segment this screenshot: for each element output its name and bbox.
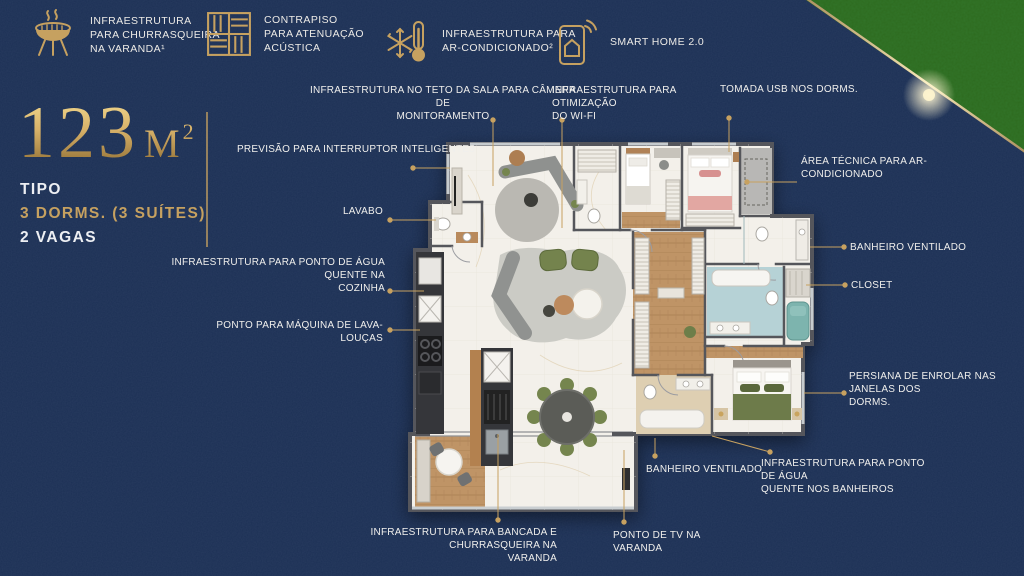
feature-smart-home: SMART HOME 2.0 (552, 17, 704, 67)
desk (654, 148, 680, 158)
toilet (644, 385, 656, 399)
toilet (766, 291, 778, 305)
callout-bancada-churrasqueira: INFRAESTRUTURA PARA BANCADA E CHURRASQUE… (337, 526, 557, 565)
bathtub (640, 410, 704, 428)
callout-line: BANHEIRO VENTILADO (646, 463, 762, 476)
feature-label-line: CONTRAPISO (264, 13, 364, 27)
area-title: 123M2 (18, 98, 197, 168)
bedroom-1 (686, 148, 739, 226)
area-unit: M (144, 121, 183, 166)
spec-vagas: 2 VAGAS (20, 226, 206, 250)
callout-line: DORMS. (849, 396, 1024, 409)
callout-line: DO WI-FI (552, 110, 712, 123)
callout-line: PONTO DE TV NA (613, 529, 701, 542)
fridge (419, 258, 441, 284)
callout-agua-cozinha: INFRAESTRUTURA PARA PONTO DE ÁGUA QUENTE… (163, 256, 385, 295)
callout-closet: CLOSET (851, 279, 893, 292)
callout-banheiro-ventilado-right: BANHEIRO VENTILADO (850, 241, 966, 254)
round-table-wood (554, 295, 574, 315)
closet (786, 269, 810, 340)
callout-wifi: INFRAESTRUTURA PARA OTIMIZAÇÃO DO WI-FI (552, 84, 712, 123)
lounge-bench (417, 440, 430, 502)
callout-persiana: PERSIANA DE ENROLAR NAS JANELAS DOS DORM… (849, 370, 1024, 409)
callout-line: INFRAESTRUTURA PARA PONTO DE ÁGUA QUENTE… (163, 256, 385, 282)
feature-ar-condicionado: INFRAESTRUTURA PARA AR-CONDICIONADO² (380, 15, 576, 67)
feature-label-line: SMART HOME 2.0 (610, 35, 704, 49)
tiles-icon (206, 11, 252, 57)
callout-line: PONTO PARA MÁQUINA DE LAVA-LOUÇAS (203, 319, 383, 345)
wood-bar (470, 350, 481, 466)
smarthome-icon (552, 17, 598, 67)
marketing-floorplan-page: INFRAESTRUTURA PARA CHURRASQUEIRA NA VAR… (0, 0, 1024, 576)
callout-banheiro-ventilado-bottom: BANHEIRO VENTILADO (646, 463, 762, 476)
unit-spec-block: TIPO 3 DORMS. (3 SUÍTES) 2 VAGAS (20, 178, 206, 250)
callout-line: LAVABO (283, 205, 383, 218)
callout-camera: INFRAESTRUTURA NO TETO DA SALA PARA CÂME… (303, 84, 583, 123)
callout-line: BANHEIRO VENTILADO (850, 241, 966, 254)
callout-line: QUENTE NOS BANHEIROS (761, 483, 941, 496)
coffee-table (524, 193, 538, 207)
callout-line: TOMADA USB NOS DORMS. (720, 83, 858, 96)
callout-line: COZINHA (163, 282, 385, 295)
callout-line: VARANDA (613, 542, 701, 555)
sink (486, 430, 508, 454)
callout-lava-loucas: PONTO PARA MÁQUINA DE LAVA-LOUÇAS (203, 319, 383, 345)
callout-area-tecnica: ÁREA TÉCNICA PARA AR- CONDICIONADO (801, 155, 941, 181)
feature-label-line: INFRAESTRUTURA (90, 14, 220, 28)
lounge-area (493, 248, 626, 343)
callout-line: MONITORAMENTO (303, 110, 583, 123)
callout-line: INFRAESTRUTURA NO TETO DA SALA PARA CÂME… (303, 84, 583, 110)
callout-line: INFRAESTRUTURA PARA BANCADA E CHURRASQUE… (337, 526, 557, 552)
callout-line: VARANDA (337, 552, 557, 565)
grill-icon (28, 8, 78, 62)
feature-label-line: PARA CHURRASQUEIRA (90, 28, 220, 42)
stool (543, 305, 555, 317)
feature-label-line: PARA ATENUAÇÃO (264, 27, 364, 41)
callout-line: CONDICIONADO (801, 168, 941, 181)
spec-dorms: 3 DORMS. (3 SUÍTES) (20, 202, 206, 226)
callout-line: INFRAESTRUTURA PARA PONTO DE ÁGUA (761, 457, 941, 483)
callout-interruptor: PREVISÃO PARA INTERRUPTOR INTELIGENTE3 (237, 143, 475, 156)
callout-line: PERSIANA DE ENROLAR NAS JANELAS DOS (849, 370, 1024, 396)
bathtub (712, 270, 770, 286)
oven (419, 372, 441, 394)
plant (684, 326, 696, 338)
callout-line: PREVISÃO PARA INTERRUPTOR INTELIGENTE3 (237, 143, 475, 156)
ac-icon (380, 15, 430, 67)
callout-line: ÁREA TÉCNICA PARA AR- (801, 155, 941, 168)
callout-tomada-usb: TOMADA USB NOS DORMS. (720, 83, 858, 96)
side-table (509, 150, 525, 166)
console-table (658, 288, 684, 298)
spec-tipo: TIPO (20, 178, 206, 202)
callout-line: CLOSET (851, 279, 893, 292)
dining-area (527, 378, 607, 456)
round-rug (495, 178, 559, 242)
round-table-white (572, 289, 602, 319)
callout-lavabo: LAVABO (283, 205, 383, 218)
feature-label-line: ACÚSTICA (264, 41, 364, 55)
toilet (756, 227, 768, 241)
balcony-tv (622, 468, 630, 490)
tv-console (452, 168, 462, 214)
feature-contrapiso: CONTRAPISO PARA ATENUAÇÃO ACÚSTICA (206, 11, 364, 57)
callout-agua-banheiros: INFRAESTRUTURA PARA PONTO DE ÁGUA QUENTE… (761, 457, 941, 496)
feature-label-line: NA VARANDA¹ (90, 42, 220, 56)
wardrobe (666, 180, 680, 220)
feature-churrasqueira: INFRAESTRUTURA PARA CHURRASQUEIRA NA VAR… (28, 8, 220, 62)
area-unit-sup: 2 (183, 119, 197, 144)
area-number: 123 (18, 92, 138, 174)
callout-ponto-tv: PONTO DE TV NA VARANDA (613, 529, 701, 555)
chair (659, 160, 669, 170)
callout-line: INFRAESTRUTURA PARA OTIMIZAÇÃO (552, 84, 712, 110)
